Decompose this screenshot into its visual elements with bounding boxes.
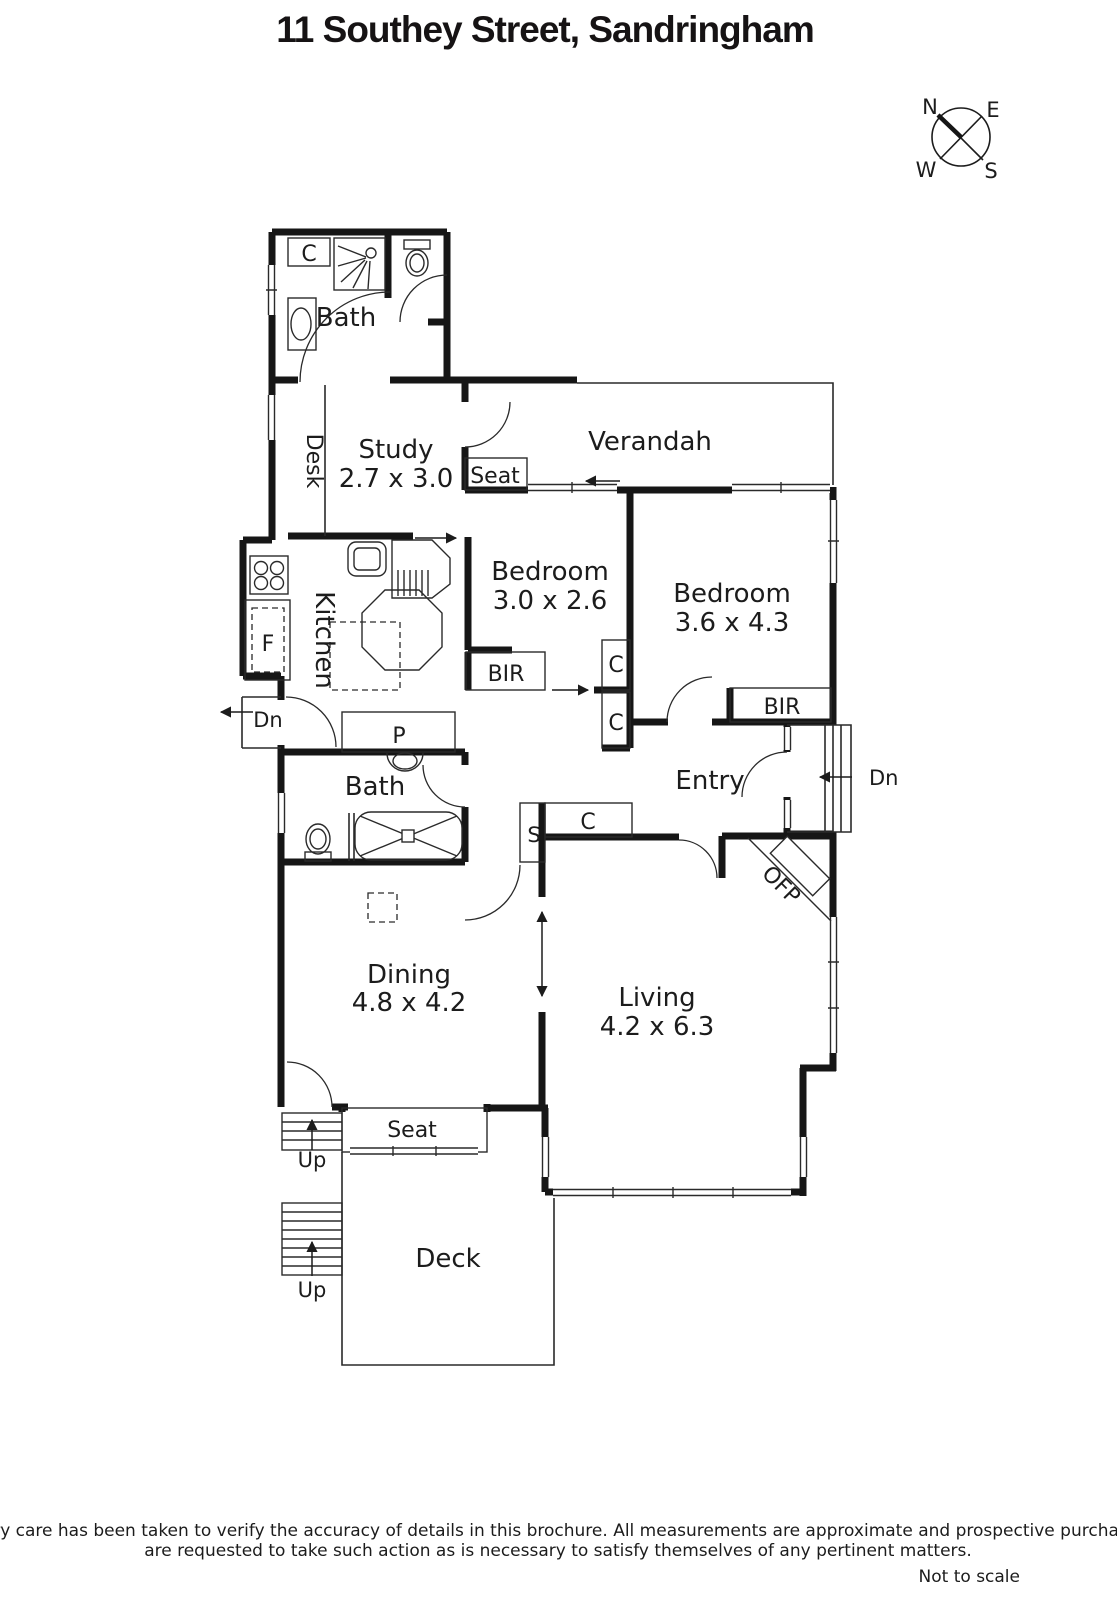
stove (250, 556, 288, 594)
window (828, 917, 839, 1053)
window (782, 727, 792, 750)
label-up-upper: Up (298, 1148, 327, 1172)
window (540, 1137, 551, 1177)
window (782, 800, 792, 828)
label-seat-dining: Seat (387, 1118, 437, 1143)
compass-west: W (916, 158, 937, 182)
walls (243, 232, 836, 1196)
label-store: S (527, 823, 540, 847)
floorplan-page: 11 Southey Street, Sandringham N E W S (0, 0, 1117, 1600)
label-desk: Desk (301, 434, 326, 489)
compass-south: S (984, 159, 997, 183)
label-study-size: 2.7 x 3.0 (339, 464, 454, 494)
footer: Every care has been taken to verify the … (0, 1521, 1117, 1587)
label-closet-hall-lower: C (608, 711, 623, 736)
label-up-lower: Up (298, 1278, 327, 1302)
label-fridge: F (262, 632, 275, 657)
windows (266, 265, 839, 1198)
label-bedroom-large-size: 3.6 x 4.3 (675, 608, 790, 638)
toilet (404, 240, 430, 276)
label-study: Study (358, 435, 433, 465)
window (266, 265, 277, 315)
label-entry: Entry (675, 766, 744, 796)
label-closet-entry: C (580, 810, 595, 835)
shower (334, 238, 385, 290)
bathtub (355, 812, 462, 860)
label-down-front: Dn (869, 766, 898, 790)
disclaimer-line-2: are requested to take such action as is … (144, 1541, 972, 1561)
kitchen-island-dashed (330, 622, 400, 690)
label-bir-bedroom-large: BIR (764, 695, 801, 720)
label-verandah: Verandah (588, 427, 712, 457)
label-bath-middle: Bath (345, 772, 405, 802)
window (266, 395, 277, 440)
label-bath-top: Bath (316, 303, 376, 333)
basin (387, 753, 423, 771)
window (276, 793, 287, 833)
disclaimer-line-1: Every care has been taken to verify the … (0, 1521, 1117, 1541)
window (828, 500, 839, 583)
compass-rose-icon: N E W S (916, 95, 1000, 183)
label-dining: Dining (367, 960, 451, 990)
window (798, 1137, 809, 1177)
label-kitchen: Kitchen (309, 591, 339, 689)
label-living: Living (618, 983, 695, 1013)
window (350, 1146, 478, 1156)
label-bir-bedroom-small: BIR (488, 662, 525, 687)
label-bedroom-small: Bedroom (491, 557, 609, 587)
label-deck: Deck (415, 1244, 480, 1274)
window (732, 482, 830, 493)
label-dining-size: 4.8 x 4.2 (352, 988, 467, 1018)
window (553, 1187, 791, 1198)
kitchen-sink-bench (330, 540, 450, 690)
dining-dashed-unit (368, 893, 397, 922)
label-closet-hall-upper: C (608, 653, 623, 678)
basin (288, 298, 316, 350)
label-pantry: P (392, 724, 405, 749)
label-living-size: 4.2 x 6.3 (600, 1012, 715, 1042)
compass-north: N (922, 95, 938, 119)
label-down-back: Dn (253, 708, 282, 732)
doors (286, 275, 787, 1107)
not-to-scale-note: Not to scale (919, 1567, 1020, 1587)
page-title: 11 Southey Street, Sandringham (276, 9, 813, 50)
toilet (305, 824, 331, 861)
label-bedroom-small-size: 3.0 x 2.6 (493, 586, 608, 616)
label-closet-bath-top: C (301, 242, 316, 267)
label-seat-verandah: Seat (470, 464, 520, 489)
compass-east: E (986, 98, 999, 122)
window (528, 482, 617, 493)
floor-plan-canvas: 11 Southey Street, Sandringham N E W S (0, 0, 1117, 1600)
label-bedroom-large: Bedroom (673, 579, 791, 609)
